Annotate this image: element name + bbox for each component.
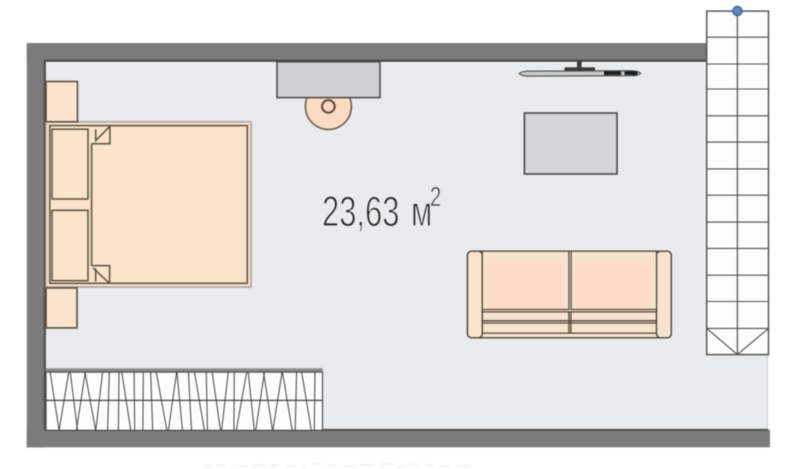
svg-text:2: 2: [430, 182, 441, 213]
svg-text:23,63м: 23,63м: [322, 187, 432, 235]
